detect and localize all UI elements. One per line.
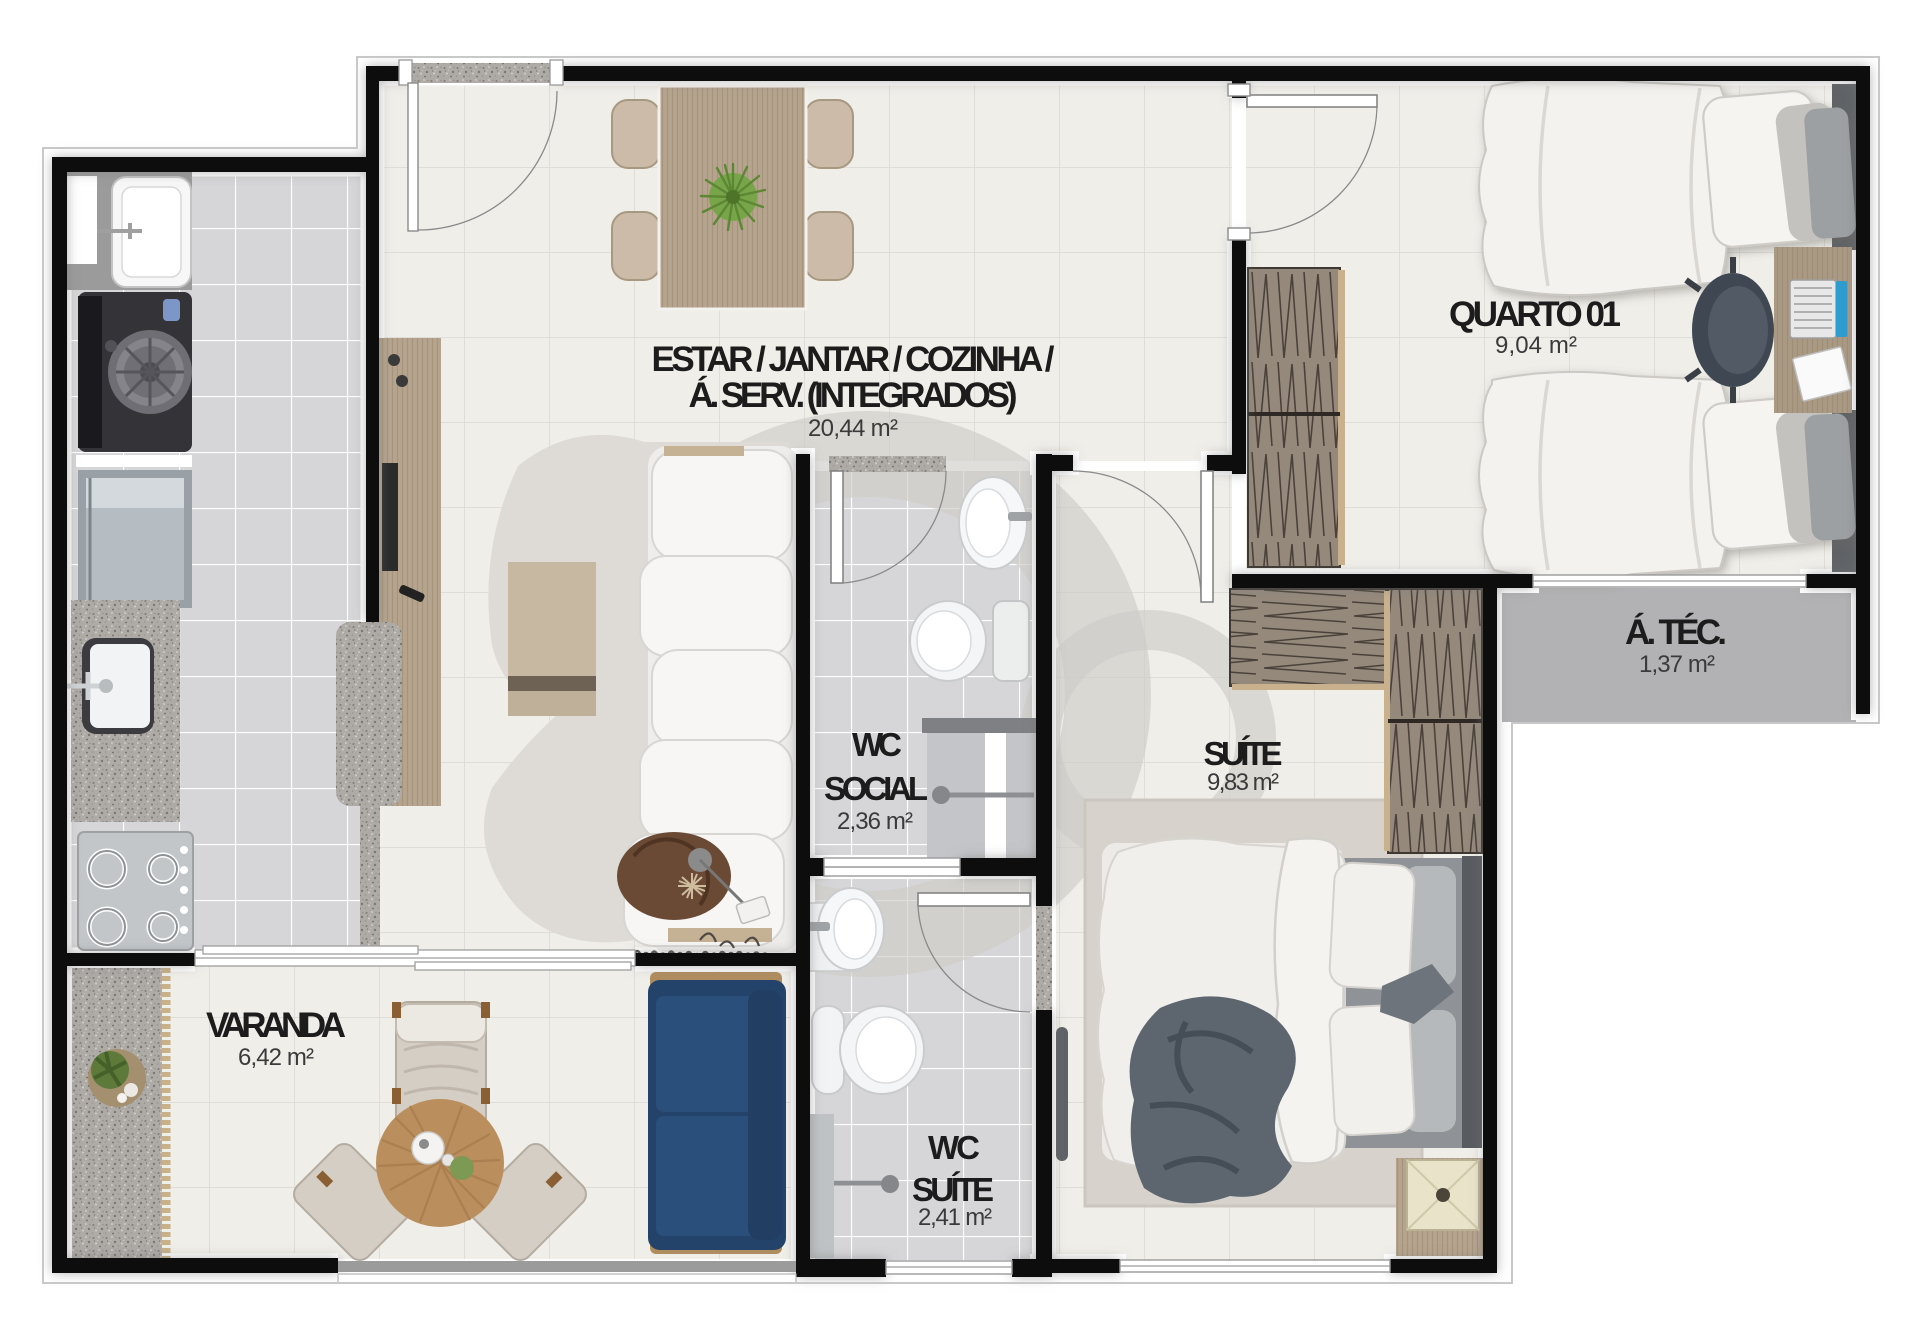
svg-text:SUÍTE: SUÍTE <box>912 1171 994 1208</box>
svg-text:2,41 m²: 2,41 m² <box>918 1204 992 1231</box>
svg-text:9,04 m²: 9,04 m² <box>1495 332 1577 359</box>
svg-text:2,36 m²: 2,36 m² <box>837 808 913 835</box>
svg-text:Á. TÉC.: Á. TÉC. <box>1625 612 1727 652</box>
svg-text:SOCIAL: SOCIAL <box>824 770 928 807</box>
svg-text:WC: WC <box>852 726 902 763</box>
svg-text:QUARTO 01: QUARTO 01 <box>1449 295 1621 334</box>
svg-text:Á. SERV. (INTEGRADOS): Á. SERV. (INTEGRADOS) <box>689 375 1018 415</box>
svg-text:VARANDA: VARANDA <box>206 1006 346 1045</box>
svg-text:20,44 m²: 20,44 m² <box>808 415 898 442</box>
svg-text:ESTAR / JANTAR / COZINHA /: ESTAR / JANTAR / COZINHA / <box>652 340 1055 379</box>
svg-text:SUÍTE: SUÍTE <box>1204 735 1283 772</box>
svg-text:9,83 m²: 9,83 m² <box>1207 769 1279 796</box>
svg-text:WC: WC <box>928 1129 980 1166</box>
svg-text:1,37 m²: 1,37 m² <box>1639 651 1715 678</box>
svg-text:6,42 m²: 6,42 m² <box>238 1044 314 1071</box>
